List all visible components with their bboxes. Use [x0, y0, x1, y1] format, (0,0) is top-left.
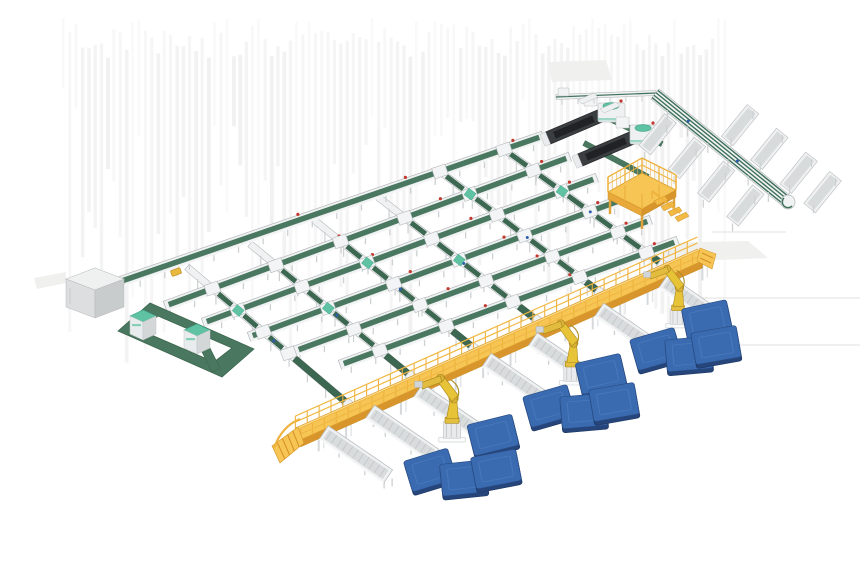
render-stripe-artifact	[264, 39, 267, 180]
render-stripe-artifact	[119, 32, 122, 237]
discharge-tray-stand-U1	[721, 105, 758, 147]
render-stripe-artifact	[169, 35, 172, 214]
render-stripe-artifact	[686, 47, 689, 239]
sensor-dot-red	[535, 254, 538, 257]
loop-induct-machine	[130, 310, 156, 340]
sensor-dot-blue	[272, 339, 275, 342]
sensor-dot-red	[446, 287, 449, 290]
render-stripe-artifact	[327, 32, 330, 215]
discharge-tray-stand-L3	[698, 161, 735, 208]
sensor-dot-red	[596, 201, 599, 204]
render-stripe-artifact	[541, 53, 545, 162]
sensor-dot-red	[439, 197, 442, 200]
render-stripe-artifact	[320, 30, 323, 334]
sensor-dot-red	[409, 270, 412, 273]
sensor-dot-red	[404, 176, 407, 179]
render-stripe-artifact	[364, 39, 367, 145]
discharge-tray-stand-U3	[780, 152, 818, 194]
render-stripe-artifact	[427, 33, 430, 180]
render-stripe-artifact	[352, 33, 355, 174]
render-stripe-artifact	[87, 48, 91, 211]
render-stripe-artifact	[213, 22, 216, 126]
render-stripe-artifact	[125, 50, 129, 363]
render-stripe-artifact	[194, 51, 198, 260]
render-stripe-artifact	[509, 27, 512, 224]
render-stripe-artifact	[201, 38, 204, 273]
render-stripe-artifact	[232, 56, 236, 126]
render-stripe-artifact	[560, 43, 563, 124]
render-stripe-artifact	[301, 34, 304, 222]
sensor-dot-red	[296, 213, 299, 216]
render-stripe-artifact	[503, 56, 507, 218]
render-stripe-artifact	[270, 56, 274, 231]
discharge-tray-stand-U2	[751, 128, 789, 170]
pallet-8	[589, 382, 641, 425]
control-cabinet	[66, 268, 124, 318]
render-stripe-artifact	[94, 45, 97, 228]
render-stripe-artifact	[516, 41, 519, 154]
sensor-dot-red	[502, 236, 505, 239]
sensor-dot-blue	[589, 210, 592, 213]
render-stripe-artifact	[705, 49, 709, 139]
render-stripe-artifact	[226, 19, 228, 213]
render-stripe-artifact	[459, 48, 463, 122]
render-stripe-artifact	[220, 33, 223, 186]
render-stripe-artifact	[62, 18, 64, 88]
render-stripe-artifact	[112, 30, 115, 182]
render-stripe-artifact	[251, 26, 254, 342]
sensor-dot-red	[653, 242, 656, 245]
sensor-dot-blue	[462, 262, 465, 265]
outfeed-roller-spur-1	[319, 426, 392, 489]
render-stripe-artifact	[100, 44, 103, 271]
render-stripe-artifact	[358, 37, 361, 235]
sensor-dot-red	[469, 217, 472, 220]
render-stripe-artifact	[383, 29, 386, 128]
sorting-facility-illustration	[0, 0, 860, 580]
render-stripe-artifact	[81, 48, 85, 258]
render-stripe-artifact	[402, 45, 405, 216]
render-stripe-artifact	[308, 22, 311, 284]
render-stripe-artifact	[163, 31, 166, 333]
render-stripe-artifact	[377, 42, 380, 188]
render-stripe-artifact	[138, 20, 140, 135]
render-stripe-artifact	[446, 28, 449, 119]
render-stripe-artifact	[245, 42, 248, 217]
discharge-tray-stand-U4	[804, 171, 842, 213]
sensor-dot-blue	[399, 288, 402, 291]
render-stripe-artifact	[144, 30, 147, 349]
render-stripe-artifact	[289, 41, 292, 356]
render-stripe-artifact	[390, 38, 393, 311]
loop-induct-machine	[184, 324, 210, 354]
render-stripe-artifact	[440, 24, 443, 136]
render-stripe-artifact	[182, 46, 185, 197]
sensor-dot-blue	[335, 314, 338, 317]
render-stripe-artifact	[579, 35, 582, 127]
walkway-stair-ramp-left	[272, 419, 304, 463]
render-stripe-artifact	[276, 46, 279, 166]
render-stripe-artifact	[175, 46, 178, 277]
sensor-dot-red	[568, 181, 571, 184]
render-stripe-artifact	[472, 32, 475, 121]
render-stripe-artifact	[465, 27, 468, 119]
render-stripe-artifact	[333, 40, 336, 164]
render-stripe-artifact	[207, 57, 211, 232]
sensor-dot-red	[511, 139, 514, 142]
sensor-dot-red	[624, 222, 627, 225]
render-stripe-artifact	[106, 58, 110, 169]
factory-3d-render	[0, 0, 860, 580]
render-stripe-artifact	[421, 52, 425, 178]
render-stripe-artifact	[522, 23, 525, 100]
render-stripe-artifact	[75, 24, 78, 108]
discharge-tray-stand-L4	[727, 185, 765, 232]
render-stripe-artifact	[434, 21, 437, 135]
render-stripe-artifact	[283, 52, 287, 266]
sensor-dot-red	[540, 160, 543, 163]
render-stripe-artifact	[157, 53, 161, 233]
render-stripe-artifact	[238, 55, 242, 165]
render-stripe-artifact	[371, 18, 373, 117]
pallet-12	[691, 325, 743, 368]
render-stripe-artifact	[572, 26, 575, 204]
render-stripe-artifact	[131, 22, 134, 297]
sensor-dot-blue	[526, 236, 529, 239]
render-stripe-artifact	[528, 18, 530, 136]
sensor-dot-red	[484, 304, 487, 307]
